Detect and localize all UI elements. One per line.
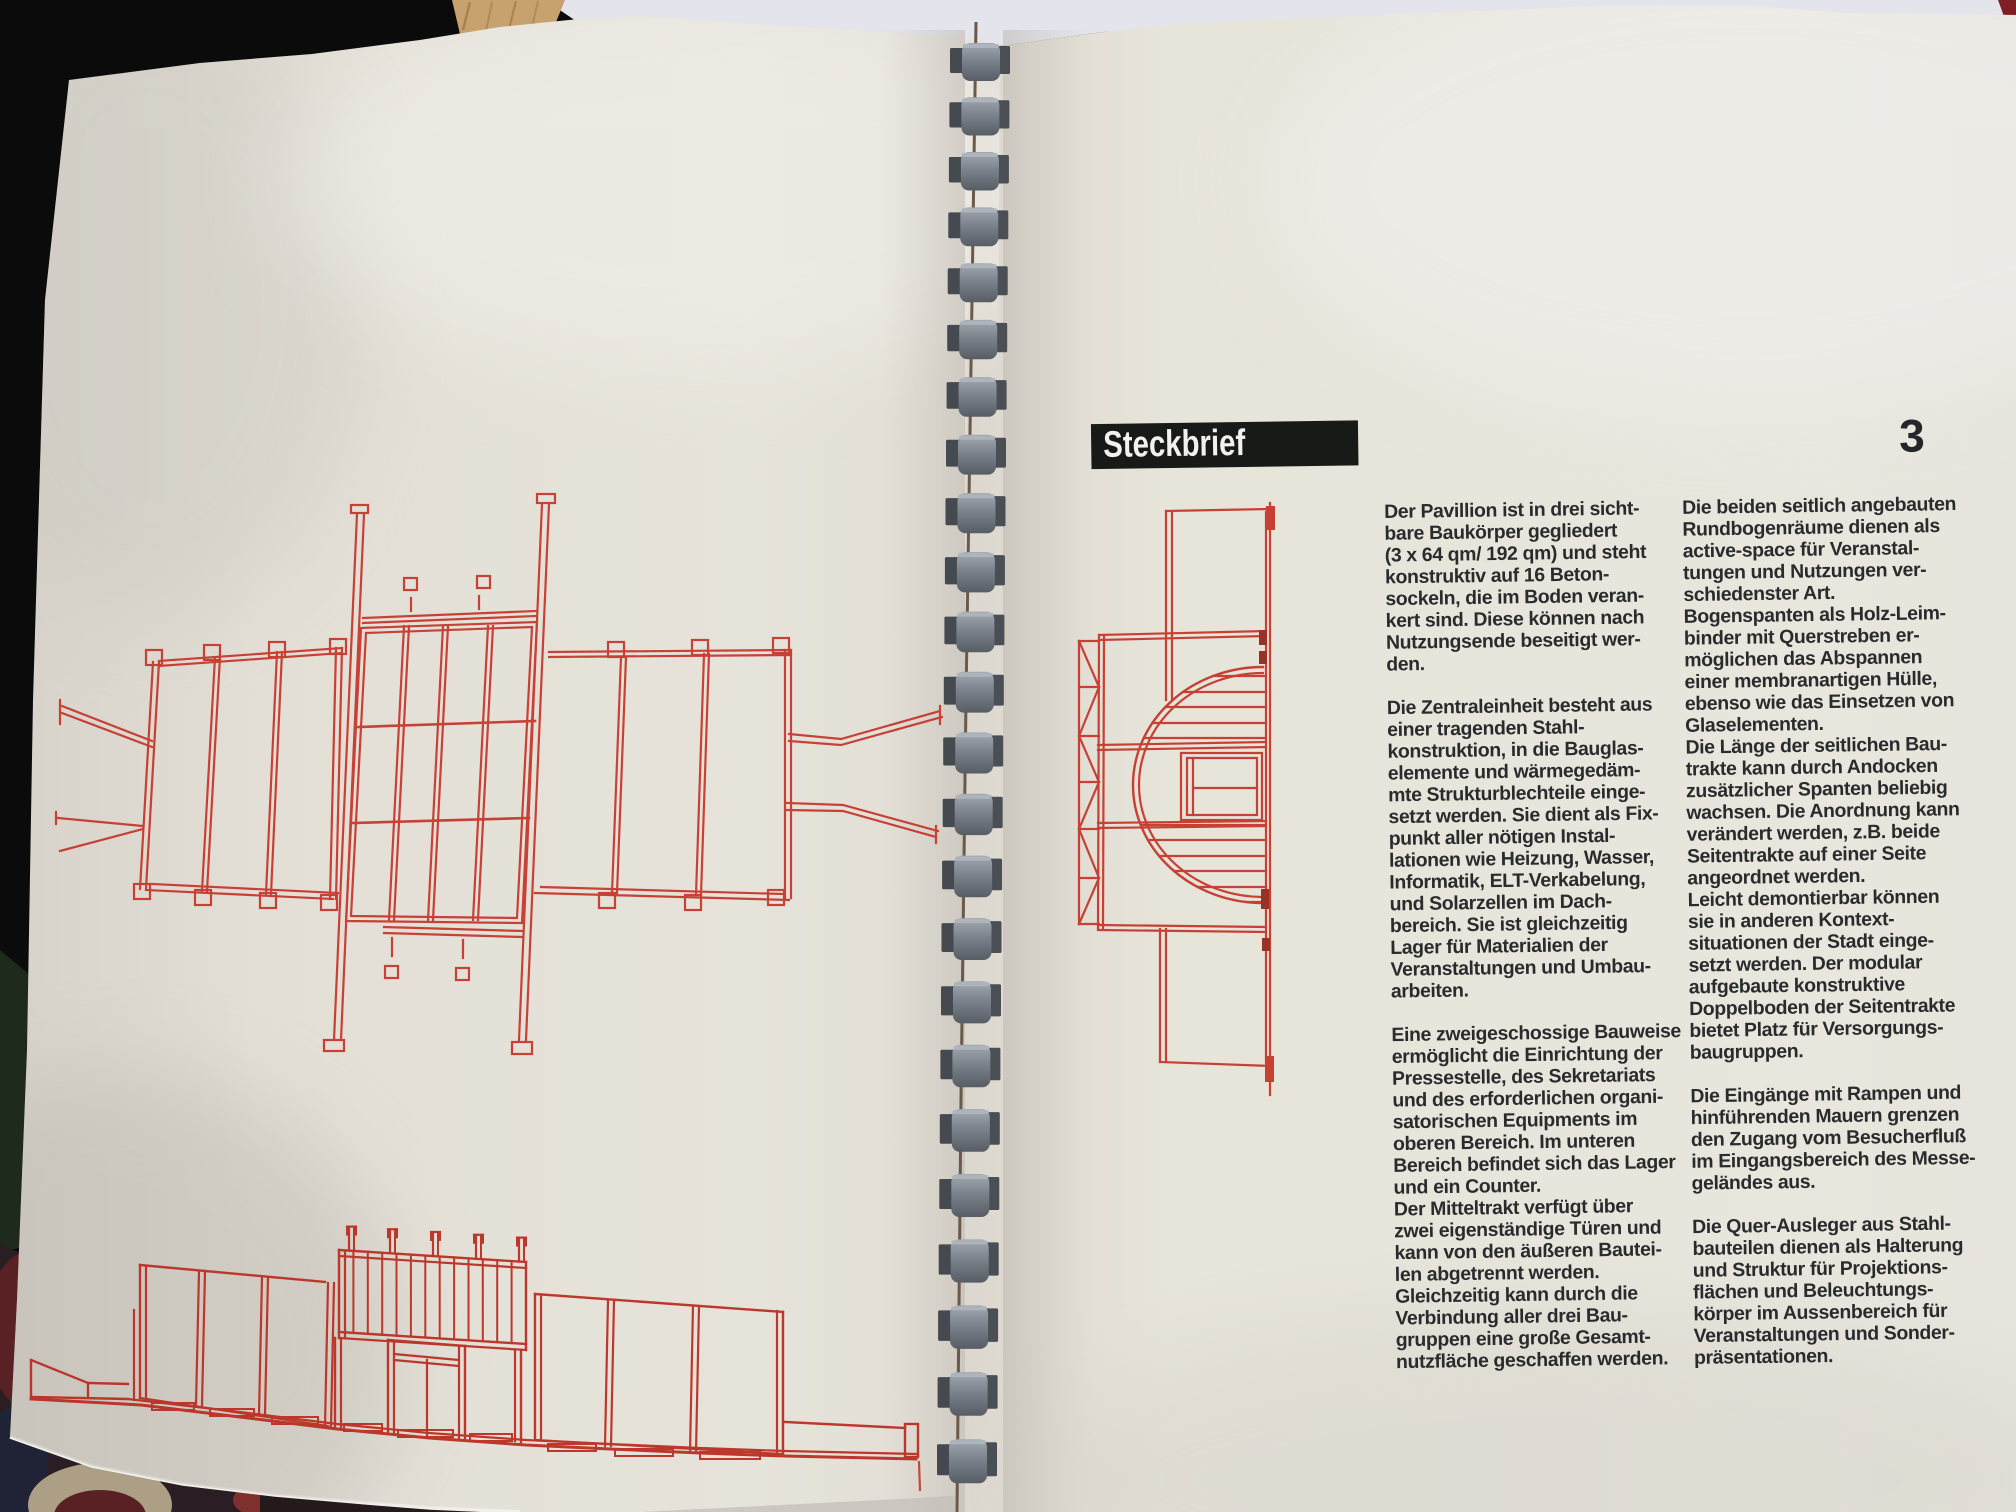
svg-text:sie in anderen Kontext-: sie in anderen Kontext- bbox=[1688, 908, 1895, 933]
svg-text:Die Zentraleinheit besteht aus: Die Zentraleinheit besteht aus bbox=[1387, 693, 1653, 719]
svg-text:Veranstaltungen und Umbau-: Veranstaltungen und Umbau- bbox=[1390, 955, 1651, 981]
svg-text:bietet Platz für Versorgungs-: bietet Platz für Versorgungs- bbox=[1689, 1016, 1943, 1042]
svg-text:baugruppen.: baugruppen. bbox=[1690, 1040, 1804, 1064]
svg-text:tungen und Nutzungen ver-: tungen und Nutzungen ver- bbox=[1683, 559, 1927, 584]
svg-text:len abgetrennt werden.: len abgetrennt werden. bbox=[1395, 1261, 1600, 1286]
svg-text:arbeiten.: arbeiten. bbox=[1391, 979, 1469, 1002]
svg-text:3: 3 bbox=[1899, 409, 1925, 461]
svg-text:nutzfläche geschaffen werden.: nutzfläche geschaffen werden. bbox=[1396, 1347, 1668, 1373]
svg-text:den.: den. bbox=[1386, 653, 1425, 676]
svg-text:Bereich befindet sich das Lage: Bereich befindet sich das Lager bbox=[1393, 1151, 1676, 1177]
svg-text:kann von den äußeren Bautei-: kann von den äußeren Bautei- bbox=[1394, 1238, 1661, 1264]
svg-text:geländes aus.: geländes aus. bbox=[1691, 1171, 1815, 1195]
svg-text:Glaselementen.: Glaselementen. bbox=[1685, 713, 1824, 737]
svg-text:im Eingangsbereich des Messe-: im Eingangsbereich des Messe- bbox=[1691, 1147, 1975, 1173]
svg-text:angeordnet werden.: angeordnet werden. bbox=[1687, 865, 1865, 889]
svg-text:Nutzungsende beseitigt wer-: Nutzungsende beseitigt wer- bbox=[1386, 628, 1641, 654]
svg-text:setzt werden. Sie dient als Fi: setzt werden. Sie dient als Fix- bbox=[1388, 802, 1658, 828]
svg-text:schiedenster Art.: schiedenster Art. bbox=[1683, 582, 1835, 606]
svg-text:und ein Counter.: und ein Counter. bbox=[1393, 1175, 1541, 1199]
svg-text:einer tragenden Stahl-: einer tragenden Stahl- bbox=[1387, 716, 1584, 741]
svg-text:Veranstaltungen und Sonder-: Veranstaltungen und Sonder- bbox=[1694, 1322, 1955, 1348]
svg-text:ebenso wie das Einsetzen von: ebenso wie das Einsetzen von bbox=[1685, 689, 1955, 715]
svg-text:Leicht demontierbar können: Leicht demontierbar können bbox=[1687, 886, 1939, 912]
svg-text:Seitentrakte auf einer Seite: Seitentrakte auf einer Seite bbox=[1687, 842, 1927, 867]
svg-text:Steckbrief: Steckbrief bbox=[1103, 422, 1246, 465]
svg-text:präsentationen.: präsentationen. bbox=[1694, 1345, 1833, 1369]
